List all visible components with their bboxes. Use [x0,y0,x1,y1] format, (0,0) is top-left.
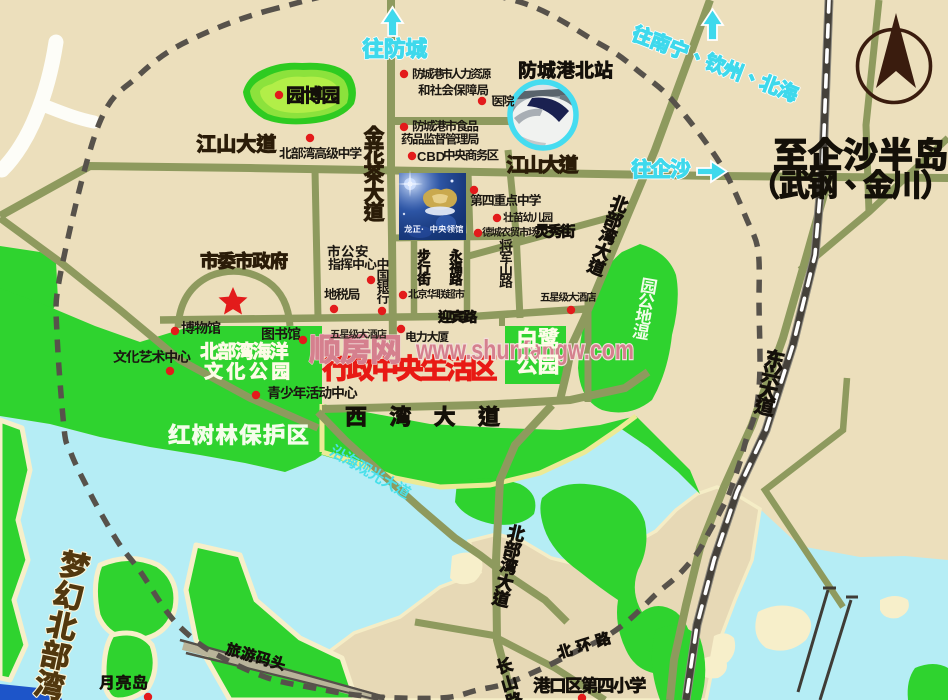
svg-text:CBD: CBD [417,149,445,164]
